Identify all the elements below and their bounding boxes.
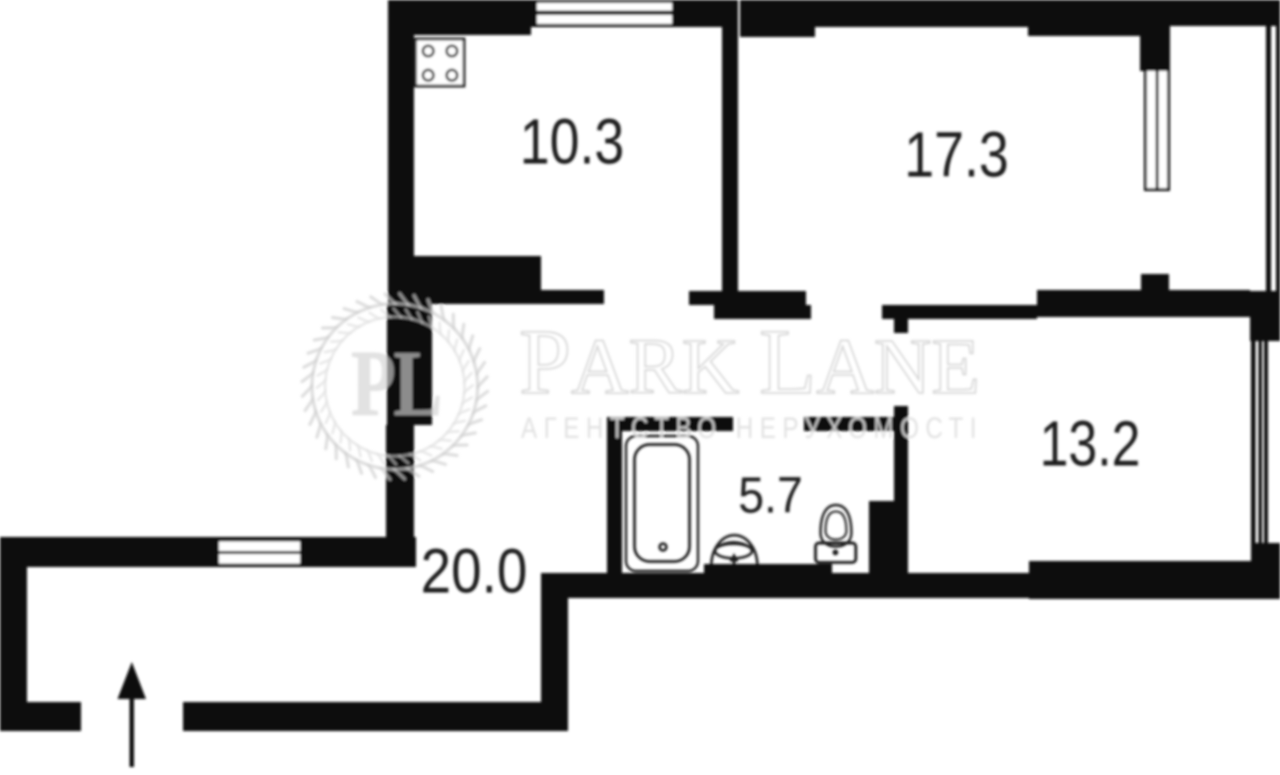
- svg-text:17.3: 17.3: [904, 118, 1009, 191]
- svg-text:PL: PL: [351, 332, 440, 436]
- svg-text:АГЕНТСТВО НЕРУХОМОСТІ: АГЕНТСТВО НЕРУХОМОСТІ: [521, 412, 983, 445]
- svg-text:13.2: 13.2: [1040, 408, 1141, 479]
- svg-text:20.0: 20.0: [421, 536, 528, 606]
- svg-text:5.7: 5.7: [738, 468, 803, 524]
- svg-text:PARK LANE: PARK LANE: [519, 311, 980, 414]
- svg-text:10.3: 10.3: [520, 105, 625, 178]
